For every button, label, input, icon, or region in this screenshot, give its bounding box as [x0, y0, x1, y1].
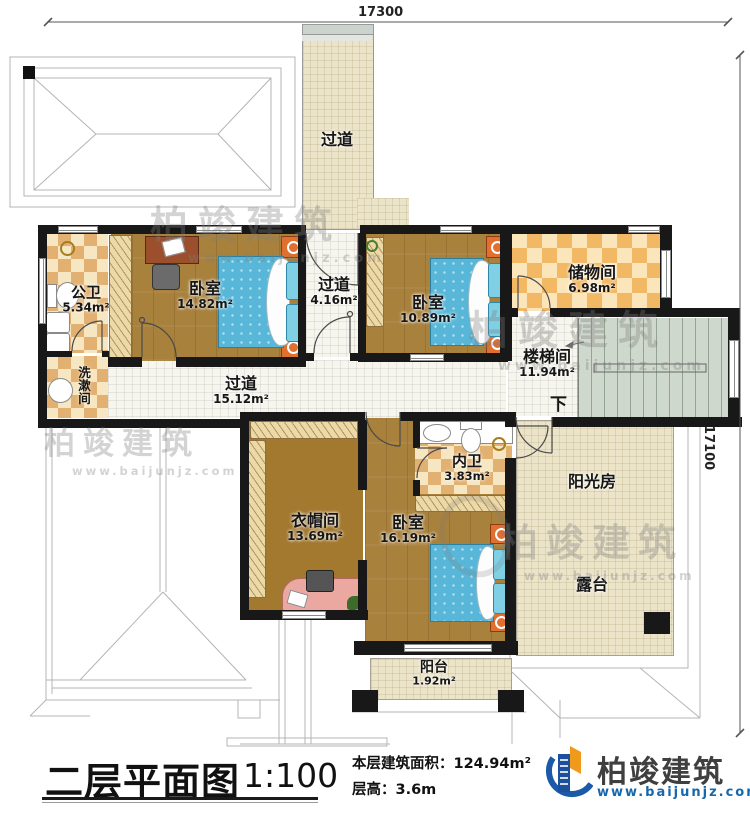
- wall: [38, 225, 47, 428]
- window: [39, 258, 46, 324]
- title-underline: [42, 797, 318, 800]
- brand-logo-icon: [545, 742, 593, 806]
- wall: [358, 560, 367, 612]
- watermark: 柏竣建筑 www.baijunjz.com: [44, 418, 237, 478]
- column: [498, 690, 524, 712]
- floor-height-line: 层高：3.6m: [352, 778, 436, 799]
- column: [352, 690, 378, 712]
- wall-hook: [492, 437, 506, 451]
- room-label-storage: 储物间 6.98m²: [568, 264, 616, 296]
- window: [282, 611, 326, 619]
- window: [410, 354, 444, 361]
- floor-plan-sheet: 17300 17100 过道 公卫 5.34m² 卧室 14.82m² 过道 4…: [0, 0, 750, 816]
- wall: [306, 353, 314, 361]
- corridor-top-step2: [302, 35, 372, 41]
- room-label-public-bath: 公卫 5.34m²: [62, 284, 109, 315]
- corridor-top-step: [302, 24, 374, 35]
- balcony-slider-door: [404, 644, 492, 652]
- corridor-main-floor: [108, 360, 506, 418]
- wall: [240, 412, 249, 618]
- wall: [242, 412, 365, 421]
- watermark: 柏竣建筑 www.baijunjz.com: [150, 194, 385, 266]
- wall: [45, 351, 72, 357]
- stair-down-label: 下: [550, 390, 567, 415]
- room-label-washroom: 洗漱间: [76, 366, 93, 405]
- column: [644, 612, 670, 634]
- room-label-sunroom: 阳光房: [568, 473, 616, 491]
- window: [440, 226, 472, 233]
- cloakroom-closet-left: [247, 440, 266, 598]
- room-label-corridor-main: 过道 15.12m²: [213, 375, 269, 407]
- room-label-bedroom3: 卧室 16.19m²: [380, 514, 436, 546]
- room-label-bedroom1: 卧室 14.82m²: [177, 280, 233, 312]
- room-label-cloakroom: 衣帽间 13.69m²: [287, 512, 343, 544]
- tv-monitor: [152, 264, 180, 290]
- wall: [505, 412, 516, 426]
- window: [628, 226, 660, 233]
- wall: [176, 357, 306, 367]
- wall: [413, 420, 420, 448]
- window: [729, 340, 739, 398]
- room-label-corridor-416: 过道 4.16m²: [310, 276, 357, 308]
- watermark: 柏竣建筑 www.baijunjz.com: [500, 512, 695, 583]
- window: [58, 226, 98, 233]
- ceiling-lamp: [60, 241, 75, 256]
- watermark: 柏竣建筑 www.baijunjz.com: [468, 298, 705, 374]
- brand-url: www.baijunjz.com: [597, 785, 750, 800]
- room-label-corridor-top: 过道: [321, 131, 353, 149]
- sheet-scale: 1:100: [243, 756, 338, 795]
- window: [661, 250, 671, 298]
- computer: [306, 570, 334, 592]
- dimension-top: 17300: [358, 5, 403, 20]
- roof-chimney: [23, 66, 35, 79]
- cloakroom-closet-top: [250, 421, 358, 439]
- wall: [358, 420, 367, 490]
- dimension-right: 17100: [701, 425, 716, 470]
- wall: [108, 357, 142, 367]
- sink: [423, 424, 451, 442]
- floor-area-line: 本层建筑面积：124.94m²: [352, 752, 531, 773]
- title-underline-shadow: [42, 802, 318, 803]
- bedroom1-wardrobe: [109, 235, 132, 359]
- wall: [413, 480, 420, 496]
- room-label-inner-bath: 内卫 3.83m²: [444, 453, 489, 483]
- wash-basin: [48, 378, 73, 403]
- room-label-balcony: 阳台 1.92m²: [412, 660, 455, 689]
- room-label-bedroom2: 卧室 10.89m²: [400, 294, 456, 326]
- toilet: [461, 428, 481, 453]
